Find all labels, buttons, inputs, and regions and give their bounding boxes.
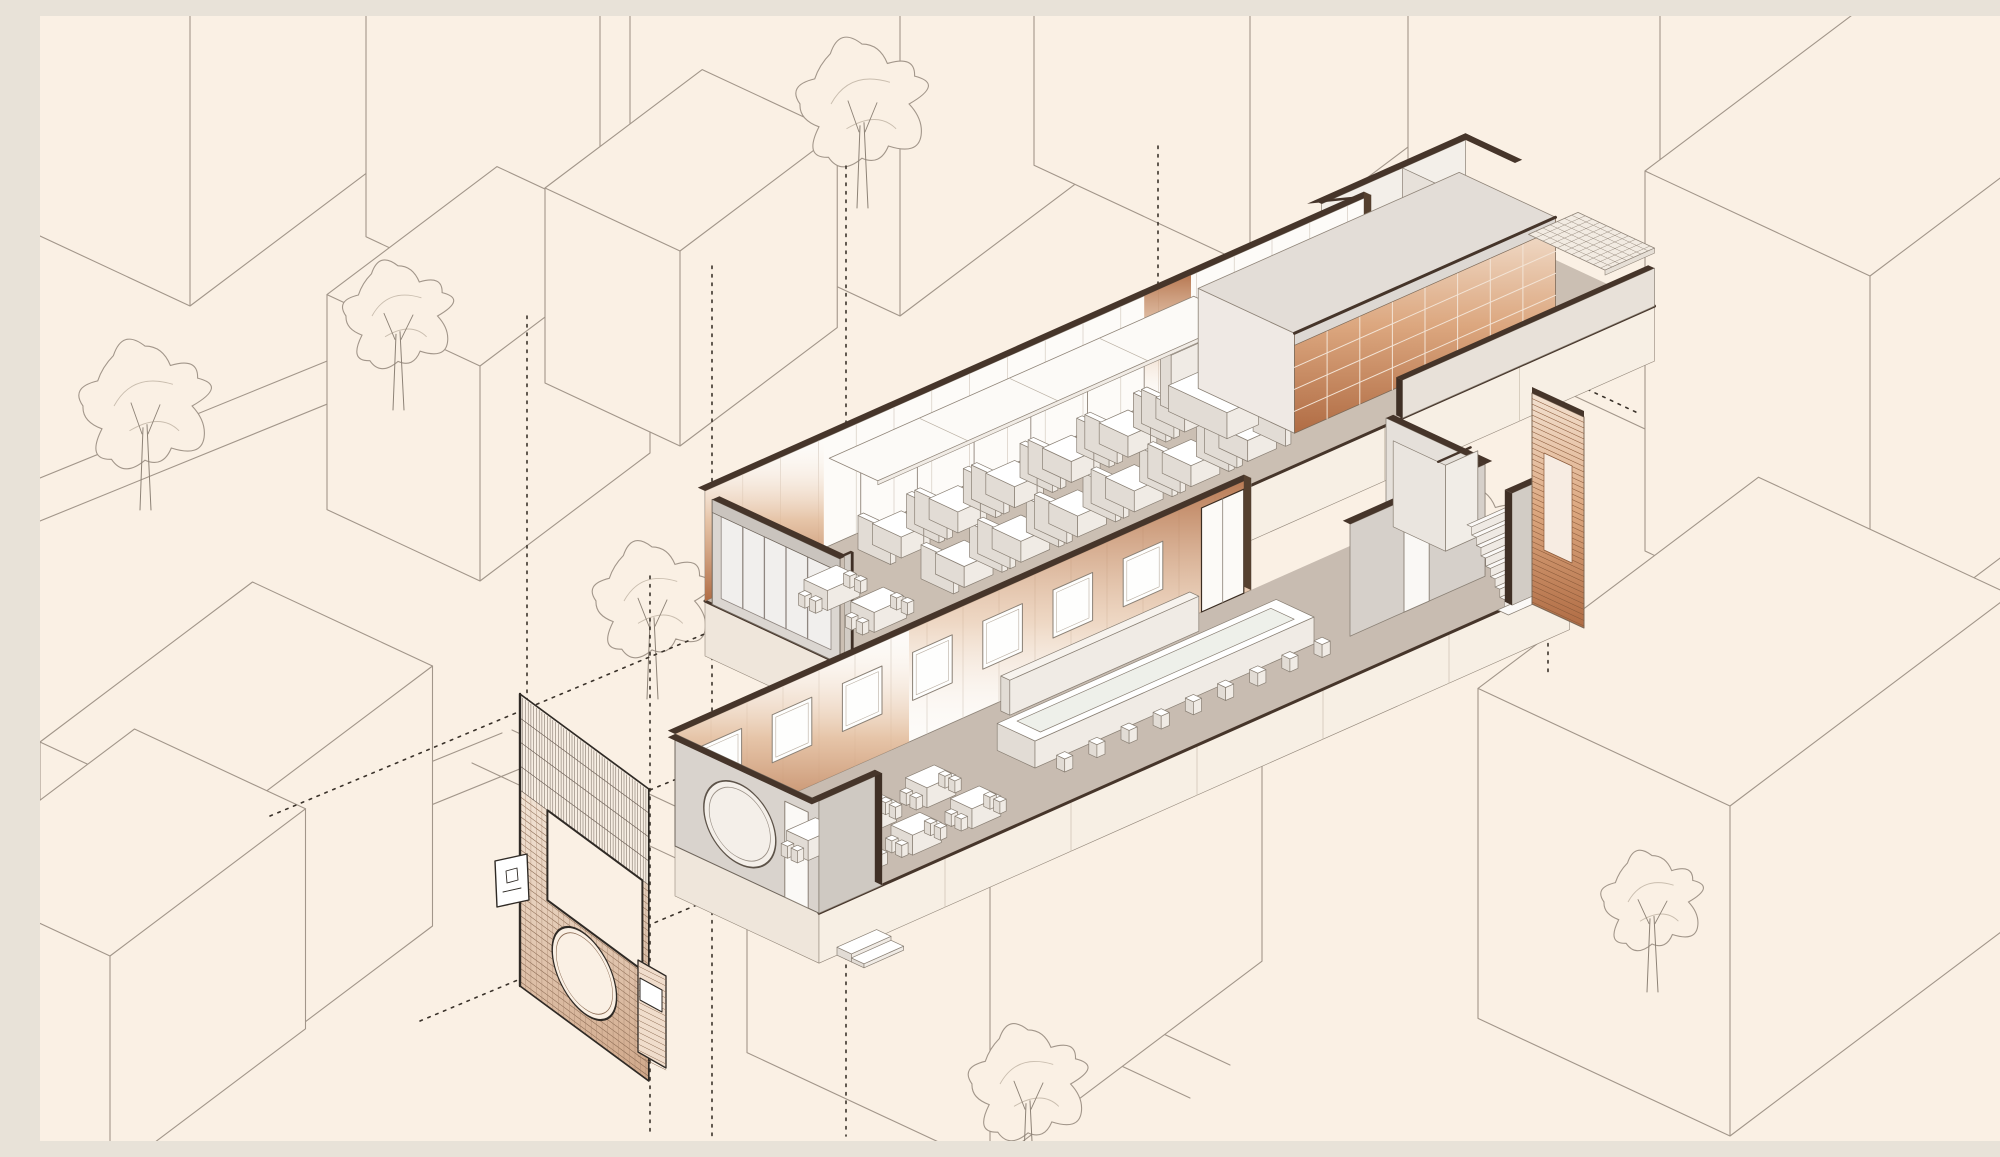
restroom-partition <box>1445 451 1477 551</box>
drawing-canvas <box>40 16 2000 1141</box>
brick-pier <box>638 960 666 1070</box>
blade-sign <box>495 854 529 907</box>
sign-plate <box>495 854 529 907</box>
axonometric-restaurant-drawing <box>40 16 2000 1141</box>
copper-slat-panel <box>1532 387 1584 628</box>
slat-panel-opening <box>1544 453 1572 563</box>
